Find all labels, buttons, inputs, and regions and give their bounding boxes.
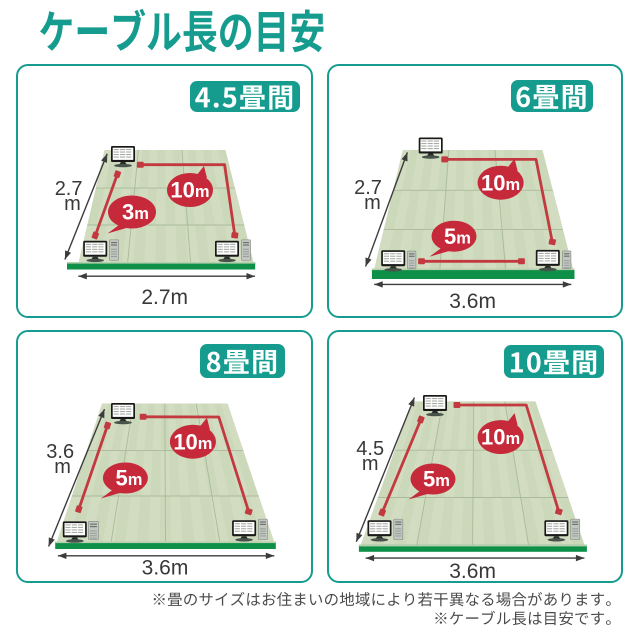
svg-text:2.7m: 2.7m	[141, 286, 188, 309]
svg-text:m: m	[64, 193, 81, 215]
svg-text:m: m	[362, 453, 379, 475]
svg-text:3.6m: 3.6m	[449, 560, 496, 583]
svg-text:3.6m: 3.6m	[142, 556, 189, 579]
svg-text:3.6m: 3.6m	[449, 290, 496, 313]
svg-text:m: m	[364, 192, 381, 214]
svg-text:m: m	[54, 456, 71, 478]
